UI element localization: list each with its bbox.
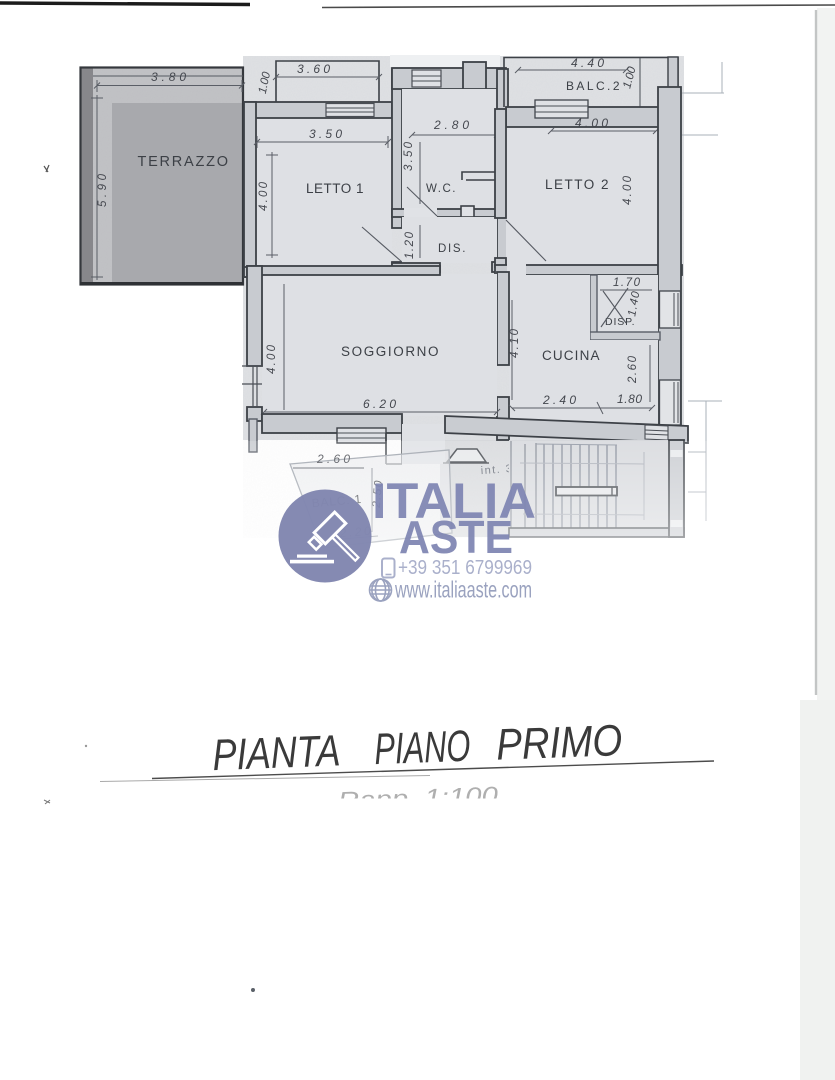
svg-text:1.20: 1.20 [404, 231, 416, 259]
svg-text:4.00: 4.00 [575, 116, 609, 130]
svg-text:3.60: 3.60 [297, 62, 331, 76]
svg-text:2.40: 2.40 [542, 393, 577, 407]
svg-text:4.00: 4.00 [266, 344, 278, 374]
svg-text:3.50: 3.50 [309, 127, 343, 141]
svg-text:3.50: 3.50 [403, 141, 415, 171]
svg-text:SOGGIORNO: SOGGIORNO [341, 344, 441, 359]
svg-text:LETTO 2: LETTO 2 [545, 177, 611, 192]
svg-text:TERRAZZO: TERRAZZO [138, 154, 231, 170]
svg-text:www.italiaaste.com: www.italiaaste.com [394, 577, 532, 603]
svg-text:CUCINA: CUCINA [542, 348, 602, 363]
svg-text:LETTO 1: LETTO 1 [306, 181, 366, 196]
svg-text:DIS.: DIS. [438, 243, 468, 255]
svg-text:1.80: 1.80 [617, 392, 643, 406]
svg-text:ASTE: ASTE [399, 511, 513, 563]
svg-text:4.10: 4.10 [509, 328, 521, 358]
svg-text:PRIMO: PRIMO [495, 716, 623, 770]
svg-text:5.90: 5.90 [97, 173, 109, 207]
svg-text:4.00: 4.00 [258, 181, 270, 211]
svg-text:2.60: 2.60 [627, 355, 639, 384]
svg-text:4.40: 4.40 [571, 56, 605, 70]
svg-text:W.C.: W.C. [426, 183, 458, 195]
svg-text:6.20: 6.20 [363, 397, 397, 411]
svg-text:DISP.: DISP. [605, 316, 637, 328]
svg-text:1.70: 1.70 [613, 277, 641, 289]
svg-text:PIANTA: PIANTA [212, 726, 342, 780]
svg-text:2.80: 2.80 [433, 118, 470, 132]
svg-text:BALC.2: BALC.2 [566, 79, 622, 93]
svg-text:PIANO: PIANO [373, 722, 471, 774]
svg-text:4.00: 4.00 [622, 175, 634, 205]
svg-text:3.80: 3.80 [151, 70, 187, 84]
